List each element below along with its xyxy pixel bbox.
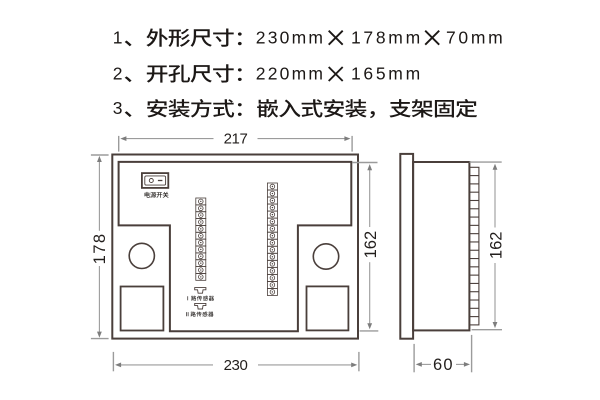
svg-text:178: 178	[91, 232, 109, 264]
svg-text:70mm: 70mm	[446, 28, 505, 48]
svg-text:60: 60	[433, 356, 454, 374]
svg-text:1: 1	[113, 28, 123, 48]
svg-text:230: 230	[224, 357, 248, 374]
svg-text:230mm: 230mm	[256, 28, 325, 48]
svg-text:165mm: 165mm	[351, 63, 423, 83]
svg-text:162: 162	[362, 231, 380, 259]
svg-text:162: 162	[488, 232, 506, 260]
svg-text:178mm: 178mm	[351, 28, 423, 48]
svg-text:2: 2	[113, 63, 123, 83]
svg-text:217: 217	[224, 131, 248, 148]
svg-text:220mm: 220mm	[256, 63, 325, 83]
svg-text:3: 3	[113, 98, 123, 118]
